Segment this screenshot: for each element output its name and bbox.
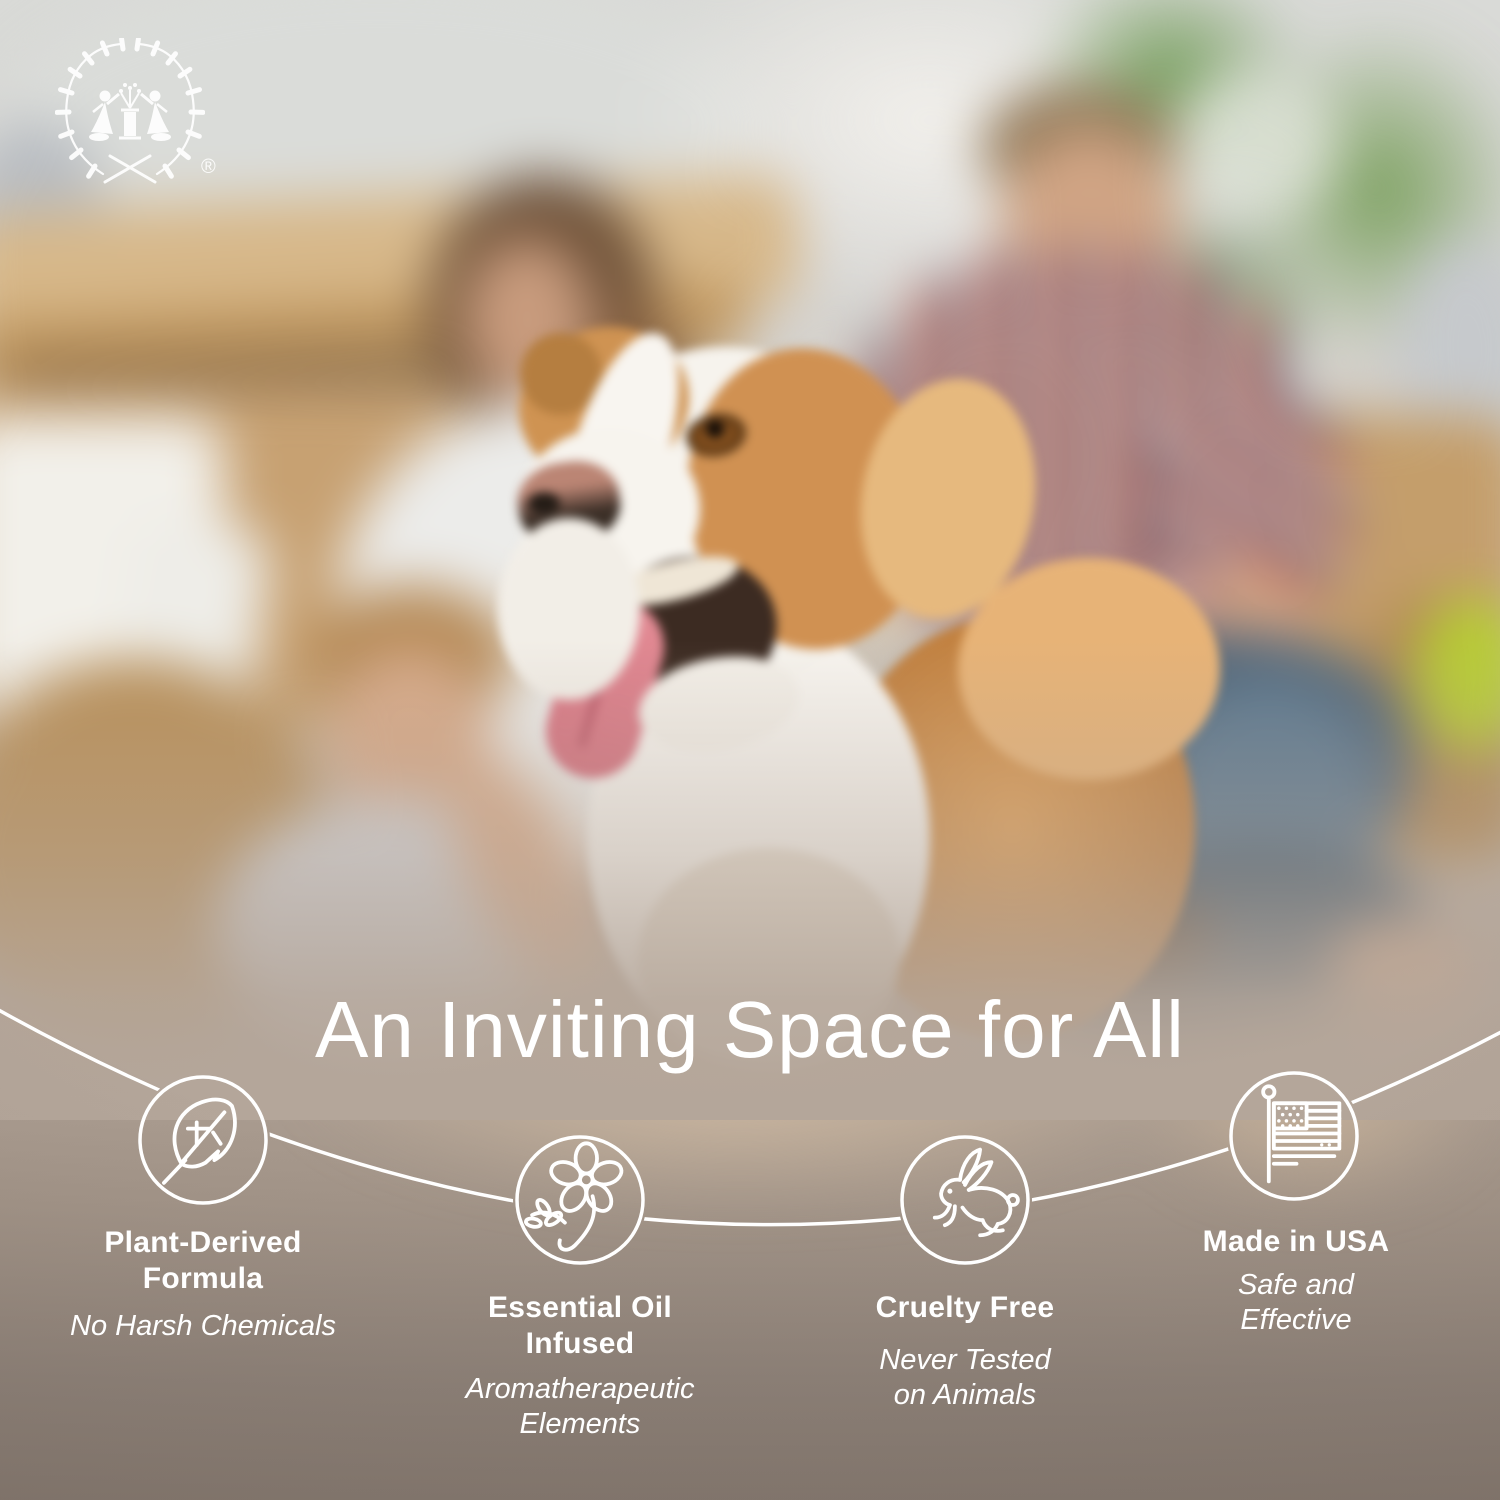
feature-title-line: Infused	[390, 1326, 770, 1362]
feature-subtitle-line: Safe and	[1106, 1268, 1486, 1303]
leaf-icon	[164, 1100, 235, 1183]
product-infographic: ® An Inviting Space for All	[0, 0, 1500, 1500]
feature-title-line: Essential Oil	[390, 1290, 770, 1326]
rabbit-icon	[935, 1150, 1018, 1236]
feature-subtitle-line: Aromatherapeutic	[390, 1372, 770, 1407]
feature-cruelty-free: Cruelty Free Never Tested on Animals	[775, 1290, 1155, 1413]
feature-subtitle-line: Never Tested	[775, 1343, 1155, 1378]
feature-subtitle-line: on Animals	[775, 1378, 1155, 1413]
feature-title-line: Formula	[13, 1261, 393, 1297]
flower-icon-ring	[517, 1137, 643, 1263]
feature-subtitle-line: Effective	[1106, 1303, 1486, 1338]
feature-title-line: Cruelty Free	[775, 1290, 1155, 1326]
feature-subtitle-line: Elements	[390, 1407, 770, 1442]
feature-title-line: Plant-Derived	[13, 1225, 393, 1261]
us-flag-icon	[1263, 1086, 1339, 1181]
feature-made-in-usa: Made in USA Safe and Effective	[1106, 1224, 1486, 1338]
feature-essential-oil: Essential Oil Infused Aromatherapeutic E…	[390, 1290, 770, 1442]
flower-icon	[525, 1143, 624, 1249]
feature-title-line: Made in USA	[1106, 1224, 1486, 1260]
feature-subtitle-line: No Harsh Chemicals	[13, 1309, 393, 1344]
feature-plant-derived: Plant-Derived Formula No Harsh Chemicals	[13, 1225, 393, 1344]
